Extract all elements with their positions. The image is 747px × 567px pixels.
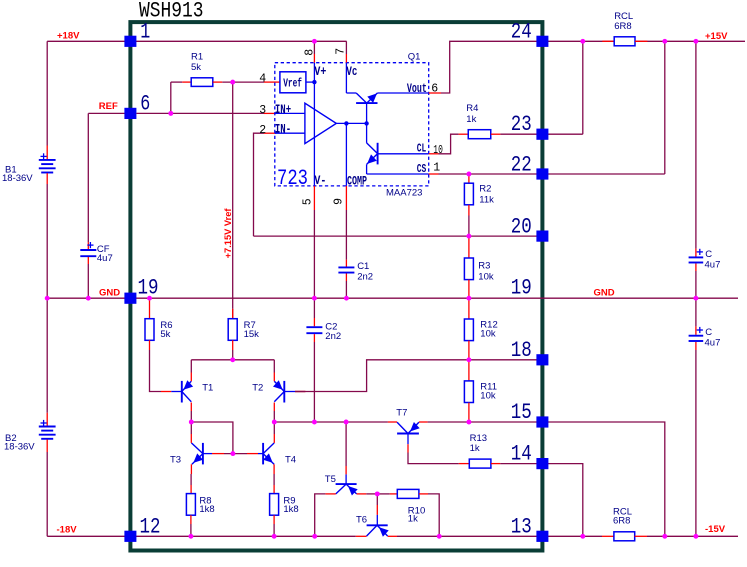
svg-text:24: 24 bbox=[511, 20, 532, 45]
svg-text:R3: R3 bbox=[478, 260, 490, 271]
svg-text:10k: 10k bbox=[478, 271, 494, 282]
svg-text:13: 13 bbox=[511, 514, 532, 539]
svg-text:6: 6 bbox=[140, 91, 150, 116]
svg-text:4u7: 4u7 bbox=[705, 338, 721, 349]
svg-text:GND: GND bbox=[594, 288, 615, 299]
svg-text:15k: 15k bbox=[244, 329, 260, 340]
svg-text:19: 19 bbox=[138, 276, 159, 301]
svg-text:10k: 10k bbox=[480, 328, 496, 339]
svg-text:V+: V+ bbox=[314, 65, 326, 79]
svg-text:IN+: IN+ bbox=[275, 103, 291, 117]
svg-text:Vout: Vout bbox=[407, 82, 427, 96]
svg-text:7: 7 bbox=[335, 48, 348, 55]
svg-text:5: 5 bbox=[302, 198, 315, 205]
svg-text:T6: T6 bbox=[356, 514, 367, 525]
svg-text:18-36V: 18-36V bbox=[4, 441, 35, 452]
svg-text:R4: R4 bbox=[466, 103, 478, 114]
svg-text:4: 4 bbox=[259, 73, 266, 86]
svg-text:T7: T7 bbox=[396, 407, 407, 418]
svg-text:MAA723: MAA723 bbox=[386, 187, 422, 198]
svg-text:15: 15 bbox=[511, 400, 532, 425]
svg-text:5k: 5k bbox=[160, 329, 170, 340]
svg-text:1: 1 bbox=[140, 20, 150, 45]
svg-text:3: 3 bbox=[259, 104, 266, 117]
svg-text:C: C bbox=[705, 327, 712, 338]
svg-text:10: 10 bbox=[433, 144, 443, 157]
svg-text:19: 19 bbox=[511, 276, 532, 301]
svg-text:1k: 1k bbox=[470, 443, 480, 454]
svg-text:Vc: Vc bbox=[346, 65, 357, 79]
svg-text:2n2: 2n2 bbox=[357, 272, 373, 283]
svg-text:9: 9 bbox=[333, 198, 346, 205]
svg-text:723: 723 bbox=[277, 165, 308, 191]
svg-text:20: 20 bbox=[511, 214, 532, 239]
svg-text:-15V: -15V bbox=[705, 524, 726, 535]
svg-text:6R8: 6R8 bbox=[614, 21, 631, 32]
svg-text:6R8: 6R8 bbox=[613, 516, 630, 527]
svg-text:1k8: 1k8 bbox=[199, 504, 214, 515]
svg-text:18: 18 bbox=[511, 338, 532, 363]
svg-text:2n2: 2n2 bbox=[325, 331, 341, 342]
svg-text:C1: C1 bbox=[357, 261, 369, 272]
svg-text:10k: 10k bbox=[480, 390, 496, 401]
svg-text:Q1: Q1 bbox=[408, 52, 421, 63]
svg-text:23: 23 bbox=[511, 112, 532, 137]
svg-text:12: 12 bbox=[140, 514, 161, 539]
svg-text:T5: T5 bbox=[325, 474, 336, 485]
svg-text:+15V: +15V bbox=[705, 31, 728, 42]
svg-text:V-: V- bbox=[314, 174, 326, 188]
svg-text:11k: 11k bbox=[479, 195, 494, 206]
svg-text:14: 14 bbox=[511, 442, 532, 467]
svg-text:8: 8 bbox=[304, 49, 317, 56]
svg-text:-18V: -18V bbox=[57, 524, 78, 535]
svg-text:Vref: Vref bbox=[283, 76, 302, 90]
svg-text:T3: T3 bbox=[170, 455, 181, 466]
svg-text:5k: 5k bbox=[191, 62, 201, 73]
svg-text:+7.15V Vref: +7.15V Vref bbox=[223, 208, 233, 259]
svg-text:22: 22 bbox=[511, 152, 532, 177]
svg-text:1k: 1k bbox=[466, 114, 476, 125]
svg-text:C: C bbox=[705, 249, 712, 260]
svg-text:GND: GND bbox=[99, 288, 120, 299]
svg-text:1k: 1k bbox=[408, 513, 418, 524]
svg-text:+18V: +18V bbox=[57, 31, 80, 42]
svg-text:IN-: IN- bbox=[275, 123, 291, 137]
svg-text:1: 1 bbox=[433, 161, 440, 174]
svg-text:4u7: 4u7 bbox=[705, 259, 721, 270]
svg-text:18-36V: 18-36V bbox=[2, 173, 33, 184]
svg-text:4u7: 4u7 bbox=[97, 253, 113, 264]
svg-text:1k8: 1k8 bbox=[283, 504, 298, 515]
svg-text:CL: CL bbox=[417, 143, 427, 156]
svg-text:2: 2 bbox=[259, 124, 266, 137]
svg-text:6: 6 bbox=[431, 83, 438, 96]
svg-text:CS: CS bbox=[417, 163, 427, 176]
svg-text:T1: T1 bbox=[202, 383, 213, 394]
svg-text:R2: R2 bbox=[479, 184, 491, 195]
svg-text:R1: R1 bbox=[191, 51, 203, 62]
svg-text:COMP: COMP bbox=[347, 174, 367, 188]
svg-text:T4: T4 bbox=[285, 455, 296, 466]
svg-text:REF: REF bbox=[99, 101, 118, 112]
svg-text:T2: T2 bbox=[252, 383, 263, 394]
